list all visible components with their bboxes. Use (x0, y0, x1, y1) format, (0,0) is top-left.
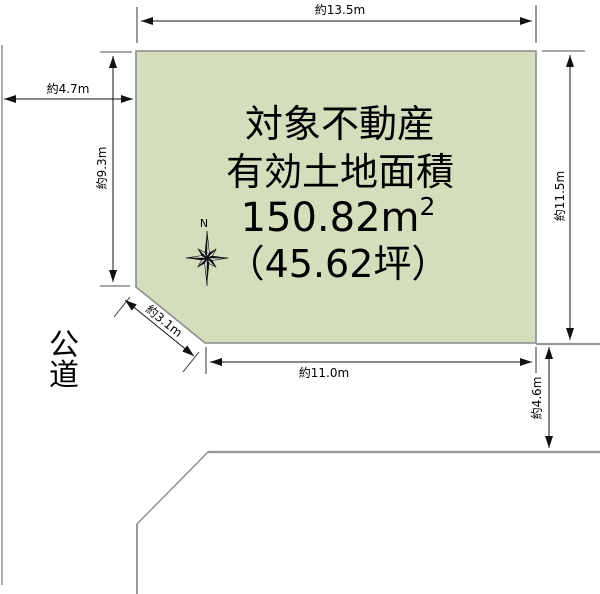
plot-survey-drawing: 約13.5m 約4.7m 約9.3m 約11.5m 約11.0m (0, 0, 600, 594)
dimension-label-east-edge: 約11.5m (552, 171, 567, 221)
dimension-label-south-edge: 約11.0m (299, 365, 349, 380)
dimension-label-west-road: 約4.7m (47, 81, 90, 96)
dimension-label-south-road: 約4.6m (529, 377, 544, 420)
extension-tick (114, 297, 130, 317)
parcel-area-superscript: 2 (420, 192, 436, 221)
dimension-label-north: 約13.5m (315, 2, 365, 17)
south-road-corner-diagonal-line (137, 452, 208, 524)
dimension-east-edge: 約11.5m (542, 51, 585, 340)
compass-north-label: N (200, 217, 208, 230)
dimension-north-edge: 約13.5m (137, 2, 536, 43)
dimension-west-road-width: 約4.7m (4, 81, 133, 99)
dimension-south-edge: 約11.0m (206, 347, 536, 380)
dimension-label-west-edge: 約9.3m (94, 147, 109, 190)
parcel-area-value: 150.82m (241, 195, 420, 241)
parcel-title-line1: 対象不動産 (245, 102, 435, 146)
extension-tick (183, 352, 199, 372)
dimension-west-edge: 約9.3m (94, 52, 132, 286)
parcel-area-tsubo: （45.62坪） (227, 242, 450, 286)
parcel-title-line2: 有効土地面積 (226, 150, 454, 194)
land-plot-diagram: 約13.5m 約4.7m 約9.3m 約11.5m 約11.0m (0, 0, 600, 594)
parcel-area-sqm: 150.82m2 (241, 192, 436, 241)
public-road-label: 公道 (49, 328, 79, 393)
